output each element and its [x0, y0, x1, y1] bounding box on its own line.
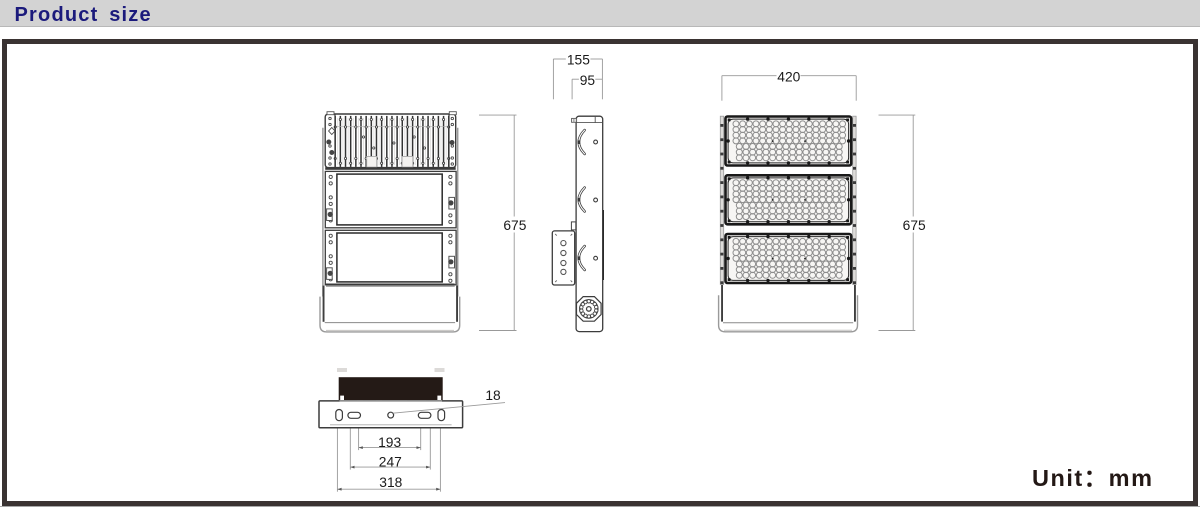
svg-text:318: 318: [379, 475, 402, 490]
svg-text:193: 193: [378, 435, 401, 450]
svg-text:675: 675: [503, 218, 526, 233]
svg-text:420: 420: [777, 69, 800, 84]
svg-text:675: 675: [903, 218, 926, 233]
svg-text:247: 247: [379, 455, 402, 470]
svg-text:155: 155: [567, 53, 590, 68]
svg-text:95: 95: [580, 73, 596, 88]
svg-text:18: 18: [485, 388, 501, 403]
